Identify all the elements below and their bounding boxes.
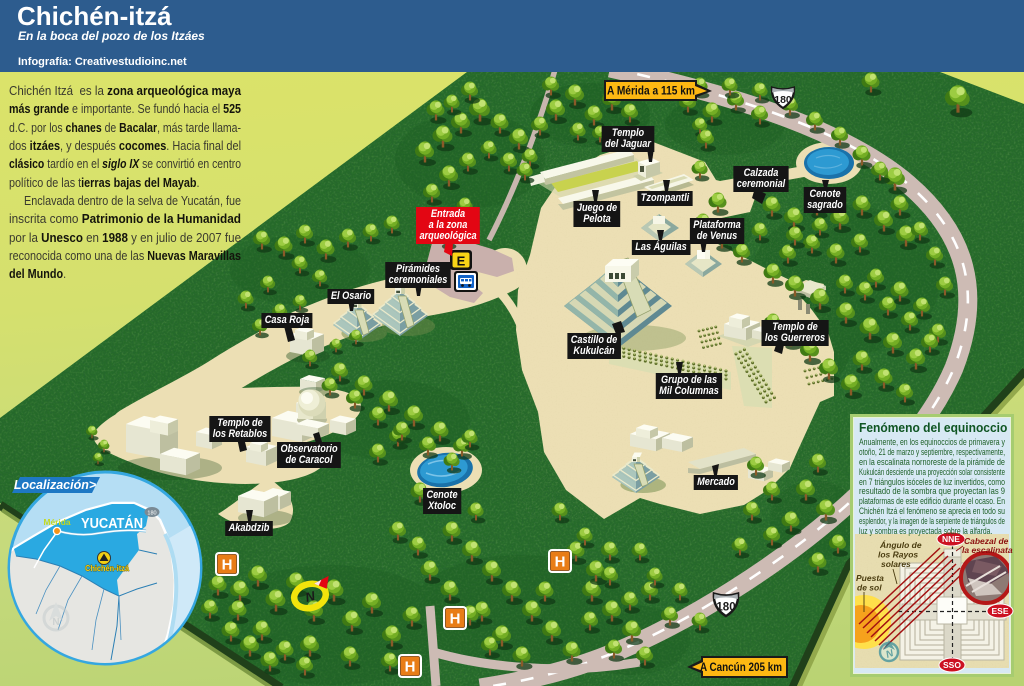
svg-text:H: H [450,611,461,628]
svg-text:Puesta: Puesta [856,573,884,583]
svg-text:Chichén-itzá: Chichén-itzá [85,563,129,573]
svg-text:la escalinata: la escalinata [962,545,1013,555]
svg-text:SSO: SSO [943,660,961,670]
svg-text:A Mérida a 115 km: A Mérida a 115 km [607,86,695,98]
svg-text:H: H [555,554,566,571]
svg-text:180: 180 [774,94,792,106]
svg-text:ESE: ESE [991,606,1008,616]
svg-text:los Rayos: los Rayos [878,550,918,560]
svg-text:N: N [52,617,59,628]
svg-text:H: H [222,557,233,574]
svg-text:E: E [457,254,466,269]
svg-text:Ángulo de: Ángulo de [879,540,922,550]
svg-text:Mérida: Mérida [44,517,71,527]
svg-text:H: H [405,659,416,676]
svg-text:Localización>: Localización> [14,478,97,492]
svg-text:solares: solares [881,559,911,569]
svg-text:A Cancún 205 km: A Cancún 205 km [700,662,782,674]
svg-text:YUCATÁN: YUCATÁN [81,515,143,532]
svg-text:de sol: de sol [857,583,882,593]
svg-text:180: 180 [716,602,735,614]
svg-text:180: 180 [147,511,156,517]
